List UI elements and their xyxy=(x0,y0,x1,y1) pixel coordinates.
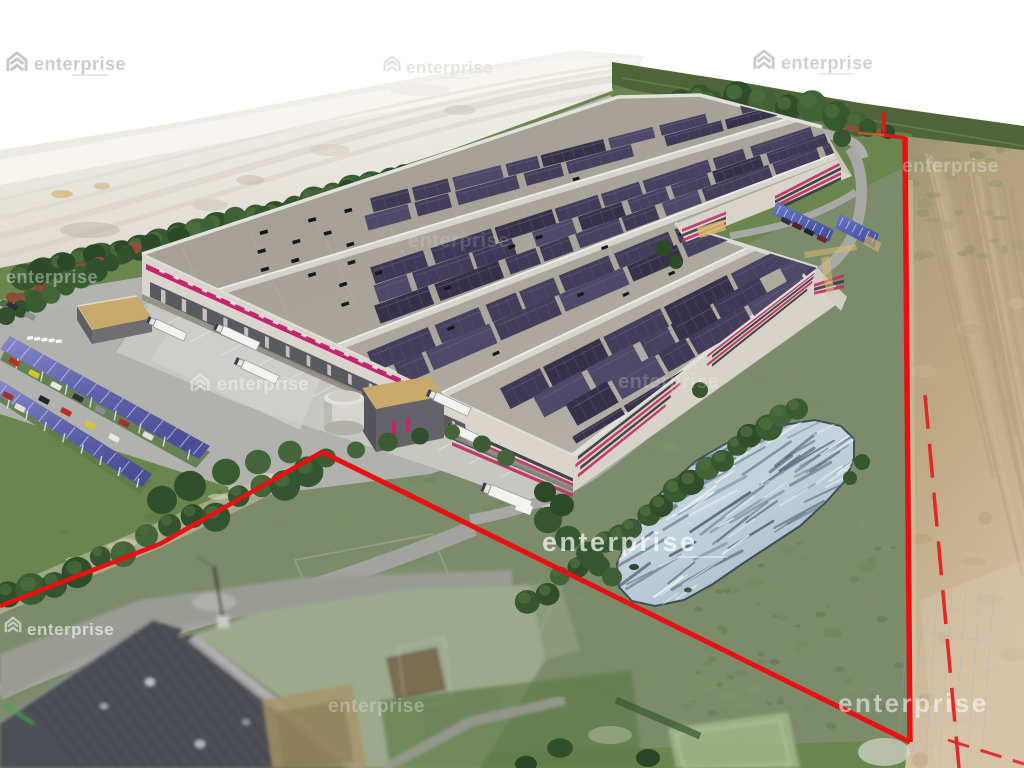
svg-text:enterprise: enterprise xyxy=(618,371,720,393)
svg-text:enterprise: enterprise xyxy=(408,230,510,252)
svg-text:enterprise: enterprise xyxy=(27,620,114,639)
svg-text:enterprise: enterprise xyxy=(542,527,698,557)
svg-text:enterprise: enterprise xyxy=(328,696,425,717)
svg-text:enterprise: enterprise xyxy=(34,54,126,74)
svg-text:enterprise: enterprise xyxy=(781,53,873,73)
svg-text:enterprise: enterprise xyxy=(902,156,999,177)
svg-text:enterprise: enterprise xyxy=(406,58,493,77)
svg-text:enterprise: enterprise xyxy=(6,267,98,287)
svg-text:enterprise: enterprise xyxy=(838,688,989,718)
svg-text:enterprise: enterprise xyxy=(217,374,309,394)
